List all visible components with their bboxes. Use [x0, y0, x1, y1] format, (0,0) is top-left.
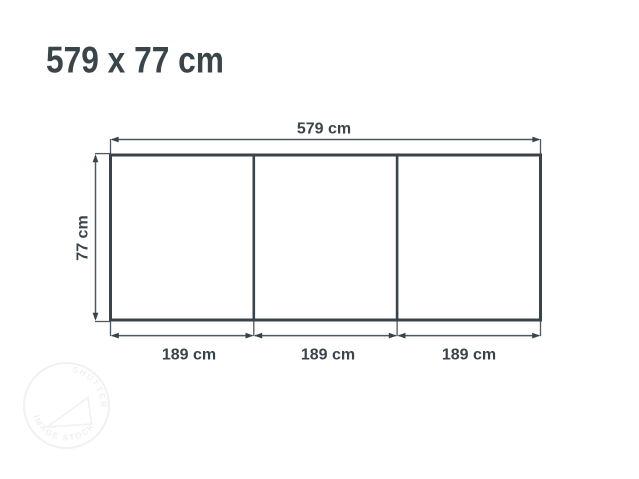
svg-text:IMAGE STOCK: IMAGE STOCK — [31, 413, 97, 442]
svg-text:189 cm: 189 cm — [301, 347, 355, 364]
svg-text:189 cm: 189 cm — [442, 347, 496, 364]
svg-text:77 cm: 77 cm — [75, 215, 92, 260]
svg-text:579 x 77 cm: 579 x 77 cm — [46, 40, 224, 81]
svg-text:579 cm: 579 cm — [297, 121, 351, 138]
svg-text:189 cm: 189 cm — [162, 347, 216, 364]
